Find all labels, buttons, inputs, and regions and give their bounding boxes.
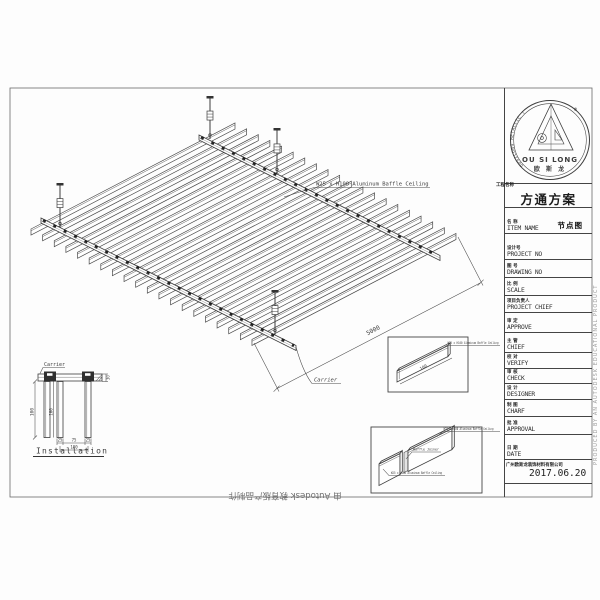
- carrier-callout-text: Carrier: [314, 378, 338, 384]
- baffle-clip: [44, 372, 56, 382]
- detail2-label-bottom: W25 x H100 Aluminum Baffle Ceiling: [391, 471, 442, 475]
- row-label-en: ITEM NAME: [507, 225, 538, 232]
- titleblock-row-designer: 设 计DESIGNER: [505, 383, 592, 399]
- row-label-cn: 比 例: [507, 281, 518, 287]
- scheme-label: 工程名称: [496, 182, 514, 188]
- titleblock-row-approve: 审 定APPROVE: [505, 312, 592, 332]
- row-label-cn: 制 图: [507, 402, 518, 408]
- empty-cell: [505, 483, 592, 497]
- row-label-en: CHARF: [507, 408, 524, 415]
- detail2-label-top: W25 x H100 Aluminum Baffle Ceiling: [444, 427, 494, 431]
- dim-bottom-mid: 75: [72, 438, 77, 443]
- drawing-sheet: { "watermarks": { "bottom": "由 Autodesk …: [0, 0, 600, 600]
- titleblock-row-scale: 比 例SCALE: [505, 277, 592, 295]
- row-label-en: PROJECT NO: [507, 251, 542, 258]
- titleblock-row-approval: 批 准APPROVAL: [505, 416, 592, 434]
- row-label-cn: 审 核: [507, 369, 518, 375]
- row-label-cn: 项目负责人: [507, 298, 530, 304]
- titleblock-row-charf: 制 图CHARF: [505, 399, 592, 416]
- installation-detail: Carrier 100 100 30: [30, 362, 111, 457]
- detail-box-1: 100 W25 x H100 Aluminum Baffle Ceiling: [388, 337, 500, 392]
- row-label-cn: 图 号: [507, 263, 518, 269]
- row-label-en: APPROVE: [507, 324, 531, 331]
- installation-carrier-label: Carrier: [44, 362, 65, 368]
- titleblock-row-project-chief: 项目负责人PROJECT CHIEF: [505, 295, 592, 312]
- autodesk-watermark-bottom: 由 Autodesk 教育版产品制作: [220, 490, 350, 502]
- baffle-joiner-piece: [404, 451, 408, 473]
- dim-height-left: 100: [30, 408, 36, 416]
- row-label-en: CHECK: [507, 375, 524, 382]
- titleblock-row-verify: 校 对VERIFY: [505, 352, 592, 368]
- row-label-en: CHIEF: [507, 344, 524, 351]
- row-label-en: DESIGNER: [507, 391, 535, 398]
- titleblock-row-drawing-no: 图 号DRAWING NO: [505, 259, 592, 277]
- detail1-label: W25 x H100 Aluminum Baffle Ceiling: [448, 341, 499, 345]
- scheme-title: 方通方案: [505, 189, 592, 208]
- baffle-clip: [82, 372, 94, 382]
- drawing-date: 2017.06.20: [529, 468, 586, 479]
- carrier-callout: Carrier: [296, 347, 341, 384]
- dim-bottom-right: 25: [86, 438, 91, 443]
- autodesk-watermark-right: PRODUCED BY AN AUTODESK EDUCATIONAL PROD…: [593, 155, 599, 465]
- hanger-rod: [207, 96, 214, 139]
- scheme-title-cell: 工程名称 方通方案: [505, 183, 592, 207]
- row-label-en: APPROVAL: [507, 426, 535, 433]
- company-cell: 广州欧斯龙装饰材料有限公司 2017.06.20: [505, 459, 592, 483]
- row-label-cn: 校 对: [507, 354, 518, 360]
- logo-triangle: [529, 104, 573, 150]
- logo-name-en: OU SI LONG: [522, 156, 578, 164]
- row-label-en: DRAWING NO: [507, 269, 542, 276]
- titleblock-row-date: 日 期DATE: [505, 434, 592, 459]
- row-label-cn: 设 计: [507, 385, 518, 391]
- baffle-callout-text: W25 x H100 Aluminum Baffle Ceiling: [316, 182, 429, 188]
- row-label-en: PROJECT CHIEF: [507, 304, 552, 311]
- row-label-cn: 批 准: [507, 420, 518, 426]
- titleblock-row-item-name: 名 称ITEM NAME节点图: [505, 207, 592, 233]
- row-label-en: DATE: [507, 451, 521, 458]
- logo-name-cn: 欧 斯 龙: [534, 165, 566, 173]
- title-block: OUSILONG METALLIC (OSL) ® OU SI LONG 欧 斯…: [504, 88, 592, 497]
- row-label-cn: 名 称: [507, 219, 518, 225]
- titleblock-row-project-no: 设计号PROJECT NO: [505, 233, 592, 259]
- row-label-cn: 审 定: [507, 318, 518, 324]
- row-label-en: VERIFY: [507, 360, 528, 367]
- titleblock-row-check: 审 核CHECK: [505, 368, 592, 383]
- title-block-rows: 名 称ITEM NAME节点图设计号PROJECT NO图 号DRAWING N…: [505, 207, 592, 459]
- titleblock-row-chief: 主 管CHIEF: [505, 332, 592, 352]
- row-label-cn: 主 管: [507, 338, 518, 344]
- item-name-value: 节点图: [558, 220, 584, 231]
- dim-top-right: 30: [106, 375, 111, 380]
- carrier-lower: [41, 218, 296, 351]
- row-label-cn: 日 期: [507, 445, 518, 451]
- row-label-en: SCALE: [507, 287, 524, 294]
- row-label-cn: 设计号: [507, 245, 521, 251]
- detail-box-2: W25 x H100 Aluminum Baffle Ceiling Baffl…: [371, 426, 500, 493]
- dim-bottom-left: 25: [58, 438, 63, 443]
- detail2-label-mid: Baffle Joiner: [413, 446, 440, 451]
- installation-title: Installation: [36, 447, 108, 456]
- dim-height-mid: 100: [48, 408, 53, 416]
- company-logo: OUSILONG METALLIC (OSL) ® OU SI LONG 欧 斯…: [505, 88, 592, 183]
- company-name: 广州欧斯龙装饰材料有限公司: [506, 462, 563, 468]
